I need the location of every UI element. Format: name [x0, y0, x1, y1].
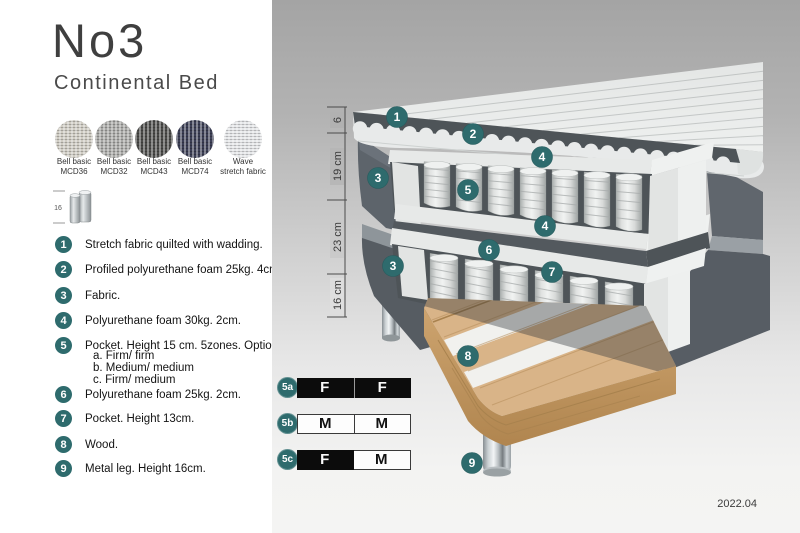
spec-item-4: 4 Polyurethane foam 30kg. 2cm. [55, 312, 241, 329]
firmness-option-5c: 5c F M [277, 449, 411, 470]
callout-3-upper: 3 [368, 168, 389, 189]
firmness-option-5b: 5b M M [277, 413, 411, 434]
spec-number-badge: 2 [55, 261, 72, 278]
spec-text: Stretch fabric quilted with wadding. [85, 239, 263, 251]
spec-number-badge: 9 [55, 460, 72, 477]
fabric-swatch [135, 120, 173, 158]
ruler-label-6: 6 [332, 117, 344, 123]
firmness-badge-5c: 5c [277, 449, 298, 470]
fabric-swatch [55, 120, 93, 158]
spec-text: Polyurethane foam 25kg. 2cm. [85, 389, 241, 401]
spec-item-5: 5 Pocket. Height 15 cm. 5zones. Option: [55, 337, 281, 354]
spec-number-badge: 5 [55, 337, 72, 354]
firmness-bar-5a: F F [297, 378, 411, 398]
spec-text: Polyurethane foam 30kg. 2cm. [85, 315, 241, 327]
spec-option-c: c. Firm/ medium [93, 374, 175, 386]
svg-text:9: 9 [469, 456, 476, 470]
leg-dimension-label: 16 [54, 205, 62, 212]
spec-option-b: b. Medium/ medium [93, 362, 194, 374]
callout-7: 7 [542, 262, 563, 283]
corner-foam-post-left-lower [398, 246, 428, 300]
spec-number-badge: 8 [55, 436, 72, 453]
fabric-swatch-label: Wavestretch fabric [215, 157, 271, 176]
dimension-ruler: 6 19 cm 23 cm 16 cm [327, 107, 347, 317]
firmness-bar-5b: M M [297, 414, 411, 434]
bed-illustration: 1 2 4 3 5 4 6 3 7 8 9 2022.04 [353, 62, 770, 510]
spec-number-badge: 3 [55, 287, 72, 304]
svg-text:4: 4 [542, 219, 549, 233]
callout-2: 2 [463, 124, 484, 145]
ruler-label-19cm: 19 cm [332, 151, 344, 181]
spec-number-badge: 6 [55, 386, 72, 403]
ruler-label-23cm: 23 cm [332, 222, 344, 252]
callout-9: 9 [462, 453, 483, 474]
fabric-swatch [176, 120, 214, 158]
firmness-cell: M [297, 414, 354, 434]
spec-number-badge: 4 [55, 312, 72, 329]
spec-item-1: 1 Stretch fabric quilted with wadding. [55, 236, 263, 253]
firmness-cell: F [354, 378, 412, 398]
callout-1: 1 [387, 107, 408, 128]
callout-3-lower: 3 [383, 256, 404, 277]
spec-text: Profiled polyurethane foam 25kg. 4cm. [85, 264, 282, 276]
firmness-cell: M [354, 414, 412, 434]
spec-text: Wood. [85, 439, 118, 451]
spec-item-3: 3 Fabric. [55, 287, 120, 304]
firmness-cell: F [297, 450, 354, 470]
ruler-label-16cm: 16 cm [332, 280, 344, 310]
spec-text: Metal leg. Height 16cm. [85, 463, 206, 475]
svg-text:5: 5 [465, 183, 472, 197]
version-label: 2022.04 [717, 498, 757, 510]
spec-item-7: 7 Pocket. Height 13cm. [55, 410, 194, 427]
callout-5: 5 [458, 180, 479, 201]
fabric-swatch [95, 120, 133, 158]
firmness-cell: F [297, 378, 354, 398]
page-subtitle: Continental Bed [54, 72, 219, 95]
callout-4-lower: 4 [535, 216, 556, 237]
metal-leg-thumbnail: 16 [50, 185, 102, 234]
spec-text: Fabric. [85, 290, 120, 302]
callout-4-upper: 4 [532, 147, 553, 168]
svg-text:2: 2 [470, 127, 477, 141]
svg-text:6: 6 [486, 243, 493, 257]
callout-8: 8 [458, 346, 479, 367]
spec-item-6: 6 Polyurethane foam 25kg. 2cm. [55, 386, 241, 403]
spec-item-9: 9 Metal leg. Height 16cm. [55, 460, 206, 477]
spec-item-8: 8 Wood. [55, 436, 118, 453]
corner-foam-post-lower-side [668, 270, 690, 352]
svg-text:4: 4 [539, 150, 546, 164]
svg-text:7: 7 [549, 265, 556, 279]
svg-text:3: 3 [375, 171, 382, 185]
callout-6: 6 [479, 240, 500, 261]
svg-text:1: 1 [394, 110, 401, 124]
product-sheet: No3 Continental Bed Bell basicMCD36 Bell… [0, 0, 800, 533]
spec-number-badge: 1 [55, 236, 72, 253]
firmness-option-5a: 5a F F [277, 377, 411, 398]
spec-option-a: a. Firm/ firm [93, 350, 154, 362]
corner-foam-post-upper-side [678, 160, 706, 243]
firmness-cell: M [354, 450, 412, 470]
spec-item-2: 2 Profiled polyurethane foam 25kg. 4cm. [55, 261, 282, 278]
firmness-bar-5c: F M [297, 450, 411, 470]
spec-text: Pocket. Height 13cm. [85, 413, 194, 425]
spec-number-badge: 7 [55, 410, 72, 427]
fabric-swatch [224, 120, 262, 158]
page-title: No3 [52, 16, 147, 66]
bed-cutaway-panel: 6 19 cm 23 cm 16 cm [272, 0, 800, 533]
firmness-badge-5b: 5b [277, 413, 298, 434]
corner-foam-post-upper-front [648, 168, 678, 251]
svg-text:8: 8 [465, 349, 472, 363]
svg-text:3: 3 [390, 259, 397, 273]
firmness-badge-5a: 5a [277, 377, 298, 398]
